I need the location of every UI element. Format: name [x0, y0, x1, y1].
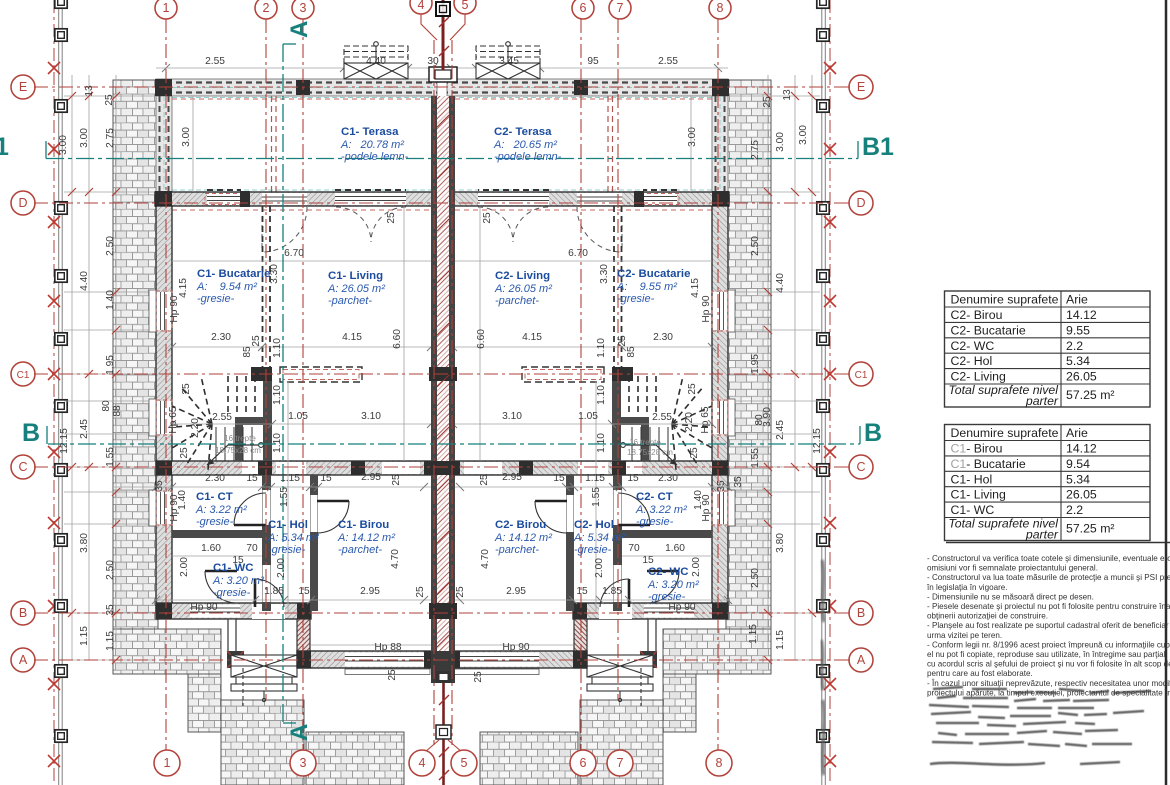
svg-text:pentru care au fost elaborate.: pentru care au fost elaborate.: [927, 669, 1033, 678]
svg-text:A: 3.22 m²: A: 3.22 m²: [195, 504, 247, 516]
svg-text:-gresie-: -gresie-: [574, 544, 612, 556]
svg-text:- Constructorul va lua toate m: - Constructorul va lua toate măsurile de…: [927, 573, 1170, 582]
svg-text:25: 25: [415, 586, 426, 598]
svg-text:70: 70: [628, 543, 640, 554]
svg-text:2.55: 2.55: [658, 56, 678, 67]
svg-text:13: 13: [84, 85, 95, 97]
svg-text:25: 25: [391, 474, 402, 486]
svg-text:2.50: 2.50: [105, 236, 116, 256]
svg-text:A: A: [286, 724, 313, 741]
svg-text:9.54: 9.54: [1066, 457, 1090, 471]
svg-text:C: C: [18, 460, 27, 474]
svg-text:25: 25: [482, 212, 493, 224]
svg-text:Hp 90: Hp 90: [502, 642, 530, 653]
svg-text:15: 15: [627, 473, 639, 484]
svg-text:A: 9.54 m²: A: 9.54 m²: [196, 281, 257, 293]
svg-text:1.15: 1.15: [79, 626, 90, 646]
svg-text:1.15: 1.15: [748, 624, 759, 644]
svg-text:B1: B1: [0, 133, 9, 161]
svg-text:70: 70: [246, 543, 258, 554]
svg-text:7: 7: [617, 1, 624, 15]
svg-text:2.55: 2.55: [652, 412, 672, 423]
svg-text:parter: parter: [1025, 394, 1059, 408]
svg-text:35: 35: [733, 476, 744, 488]
svg-text:1.85: 1.85: [602, 586, 622, 597]
svg-text:-gresie-: -gresie-: [617, 293, 655, 305]
svg-text:A: 14.12 m²: A: 14.12 m²: [494, 532, 552, 544]
svg-text:25: 25: [455, 586, 466, 598]
svg-text:omisiuni vor fi semnalate proi: omisiuni vor fi semnalate proiectantului…: [927, 564, 1098, 573]
svg-text:C1- WC: C1- WC: [951, 503, 995, 517]
svg-text:4.70: 4.70: [480, 549, 491, 569]
svg-text:A: A: [286, 21, 313, 38]
svg-text:2.45: 2.45: [775, 420, 786, 440]
svg-text:-gresie-: -gresie-: [197, 293, 235, 305]
svg-text:- În cazul unor situaţii nepre: - În cazul unor situaţii neprevăzute, re…: [927, 679, 1170, 688]
svg-text:15: 15: [553, 473, 565, 484]
svg-text:1.10: 1.10: [272, 385, 283, 405]
svg-text:urma vizitei pe teren.: urma vizitei pe teren.: [927, 631, 1002, 640]
svg-text:1: 1: [163, 1, 170, 15]
svg-text:Denumire suprafete: Denumire suprafete: [951, 293, 1059, 307]
svg-text:Hp 90: Hp 90: [169, 494, 180, 522]
svg-text:obţinerii autorizaţiei de cons: obţinerii autorizaţiei de construire.: [927, 612, 1048, 621]
svg-text:25: 25: [104, 94, 115, 106]
svg-text:2.50: 2.50: [750, 236, 761, 256]
svg-text:7: 7: [617, 756, 624, 770]
svg-text:1.15: 1.15: [585, 473, 605, 484]
svg-text:16 trepte: 16 trepte: [629, 438, 661, 447]
svg-text:1.10: 1.10: [272, 338, 283, 358]
svg-text:6.60: 6.60: [476, 329, 487, 349]
svg-text:în legislaţia în vigoare.: în legislaţia în vigoare.: [926, 583, 1008, 592]
svg-text:C1: C1: [855, 370, 868, 381]
svg-text:9.55: 9.55: [1066, 323, 1090, 337]
svg-text:-parchet-: -parchet-: [328, 295, 372, 307]
svg-text:30: 30: [427, 56, 439, 67]
svg-text:-gresie-: -gresie-: [268, 544, 306, 556]
svg-text:- Constructorul va verifica to: - Constructorul va verifica toate cotele…: [927, 554, 1170, 563]
svg-text:-gresie-: -gresie-: [213, 587, 251, 599]
svg-text:3.00: 3.00: [798, 125, 809, 145]
svg-text:8: 8: [716, 756, 723, 770]
svg-text:18.75x28 cm: 18.75x28 cm: [215, 446, 261, 455]
svg-text:1.60: 1.60: [201, 543, 221, 554]
svg-text:- Piesele desenate şi proiectu: - Piesele desenate şi proiectul nu pot f…: [927, 602, 1170, 611]
svg-text:B: B: [19, 606, 27, 620]
svg-text:6: 6: [580, 1, 587, 15]
svg-text:25: 25: [689, 447, 700, 459]
svg-text:3.00: 3.00: [58, 135, 69, 155]
svg-text:A: 3.22 m²: A: 3.22 m²: [635, 504, 687, 516]
svg-text:85: 85: [242, 346, 253, 358]
svg-text:4: 4: [419, 756, 426, 770]
svg-text:C2- WC: C2- WC: [951, 339, 995, 353]
svg-text:1.05: 1.05: [288, 411, 308, 422]
svg-text:-parchet-: -parchet-: [338, 544, 382, 556]
svg-text:3.30: 3.30: [269, 264, 280, 284]
svg-text:25: 25: [251, 335, 262, 347]
svg-text:Arie: Arie: [1066, 426, 1088, 440]
svg-text:2.95: 2.95: [360, 586, 380, 597]
svg-text:A: A: [19, 653, 28, 667]
svg-text:C2- WC: C2- WC: [648, 566, 689, 578]
svg-text:Hp 90: Hp 90: [701, 494, 712, 522]
svg-text:4.40: 4.40: [79, 271, 90, 291]
svg-text:2.00: 2.00: [276, 558, 287, 578]
svg-text:C1- Birou: C1- Birou: [338, 519, 389, 531]
svg-text:1.95: 1.95: [750, 354, 761, 374]
svg-text:A: 5.34 m²: A: 5.34 m²: [573, 532, 625, 544]
svg-text:3.45: 3.45: [499, 56, 519, 67]
svg-text:1.05: 1.05: [578, 411, 598, 422]
svg-text:C2- Bucatarie: C2- Bucatarie: [951, 323, 1026, 337]
svg-text:25: 25: [386, 212, 397, 224]
svg-text:1.95: 1.95: [105, 355, 116, 375]
svg-text:3.00: 3.00: [687, 127, 698, 147]
svg-text:3.10: 3.10: [361, 411, 381, 422]
svg-text:- Planşele au fost realizate p: - Planşele au fost realizate pe suportul…: [927, 621, 1170, 630]
svg-text:A: 26.05 m²: A: 26.05 m²: [327, 283, 385, 295]
svg-text:Denumire suprafete: Denumire suprafete: [951, 426, 1059, 440]
svg-text:95: 95: [587, 56, 599, 67]
svg-text:1.10: 1.10: [596, 338, 607, 358]
svg-text:3.10: 3.10: [502, 411, 522, 422]
svg-text:Arie: Arie: [1066, 293, 1088, 307]
svg-text:1.10: 1.10: [596, 433, 607, 453]
svg-text:A: 14.12 m²: A: 14.12 m²: [337, 532, 395, 544]
svg-text:2.50: 2.50: [105, 560, 116, 580]
svg-text:15: 15: [642, 555, 654, 566]
svg-text:A: 3.20 m²: A: 3.20 m²: [647, 579, 699, 591]
svg-text:25: 25: [617, 335, 628, 347]
svg-text:3.00: 3.00: [181, 127, 192, 147]
svg-text:Hp 90: Hp 90: [169, 295, 180, 323]
svg-text:35: 35: [716, 480, 727, 492]
svg-text:-podele lemn-: -podele lemn-: [494, 151, 562, 163]
svg-text:C1- Terasa: C1- Terasa: [341, 126, 399, 138]
svg-text:Hp 65: Hp 65: [168, 406, 179, 434]
svg-text:-parchet-: -parchet-: [495, 544, 539, 556]
svg-text:2.30: 2.30: [205, 473, 225, 484]
svg-text:A: 20.78 m²: A: 20.78 m²: [340, 139, 404, 151]
svg-text:2.75: 2.75: [105, 128, 116, 148]
svg-text:1.40: 1.40: [105, 290, 116, 310]
svg-text:3.30: 3.30: [599, 264, 610, 284]
svg-text:1: 1: [164, 756, 171, 770]
svg-text:5: 5: [461, 756, 468, 770]
svg-text:3: 3: [300, 756, 307, 770]
svg-text:3.80: 3.80: [775, 533, 786, 553]
svg-text:C2- CT: C2- CT: [636, 491, 673, 503]
svg-text:4.40: 4.40: [366, 56, 386, 67]
svg-text:5.34: 5.34: [1066, 354, 1090, 368]
svg-text:2.2: 2.2: [1066, 339, 1083, 353]
svg-text:2.45: 2.45: [79, 419, 90, 439]
svg-text:C1- WC: C1- WC: [213, 562, 254, 574]
svg-text:1.60: 1.60: [665, 543, 685, 554]
svg-text:18.75x28 cm: 18.75x28 cm: [627, 448, 673, 457]
svg-text:-gresie-: -gresie-: [648, 591, 686, 603]
svg-text:2: 2: [263, 1, 270, 15]
svg-text:25: 25: [473, 671, 484, 683]
svg-text:1.15: 1.15: [105, 631, 116, 651]
svg-text:13: 13: [782, 89, 793, 101]
svg-text:C1- CT: C1- CT: [196, 491, 233, 503]
svg-text:C1: C1: [17, 370, 30, 381]
svg-text:6.60: 6.60: [392, 329, 403, 349]
svg-text:C2- Living: C2- Living: [951, 370, 1007, 384]
svg-text:4.40: 4.40: [775, 273, 786, 293]
svg-text:2.20: 2.20: [684, 412, 695, 432]
svg-text:1.55: 1.55: [591, 487, 602, 507]
svg-text:2.95: 2.95: [506, 586, 526, 597]
svg-text:B1: B1: [862, 133, 894, 161]
svg-text:Hp 90: Hp 90: [190, 602, 218, 613]
svg-text:88: 88: [112, 405, 123, 417]
svg-text:6: 6: [580, 756, 587, 770]
svg-text:2.30: 2.30: [658, 473, 678, 484]
svg-text:2.75: 2.75: [750, 140, 761, 160]
svg-text:-podele lemn-: -podele lemn-: [341, 151, 409, 163]
svg-text:57.25 m²: 57.25 m²: [1066, 522, 1115, 536]
svg-text:25: 25: [479, 474, 490, 486]
svg-text:2.95: 2.95: [361, 472, 381, 483]
svg-text:26.05: 26.05: [1066, 370, 1097, 384]
svg-text:A: 5.34 m²: A: 5.34 m²: [267, 532, 319, 544]
svg-text:C1- Bucatarie: C1- Bucatarie: [951, 457, 1026, 471]
svg-text:14.12: 14.12: [1066, 442, 1097, 456]
svg-text:-gresie-: -gresie-: [196, 516, 234, 528]
svg-text:B: B: [857, 606, 865, 620]
svg-text:1.55: 1.55: [750, 448, 761, 468]
svg-text:Hp 90: Hp 90: [668, 602, 696, 613]
svg-text:E: E: [19, 80, 27, 94]
svg-text:2.30: 2.30: [211, 332, 231, 343]
svg-text:1.15: 1.15: [775, 630, 786, 650]
svg-text:12.15: 12.15: [812, 428, 823, 454]
svg-text:1.55: 1.55: [105, 447, 116, 467]
svg-text:1.85: 1.85: [264, 586, 284, 597]
svg-text:15: 15: [246, 473, 258, 484]
svg-text:C1- Hol: C1- Hol: [951, 472, 993, 486]
svg-text:2.55: 2.55: [205, 56, 225, 67]
svg-text:16 trepte: 16 trepte: [224, 434, 256, 443]
svg-text:D: D: [18, 196, 27, 210]
svg-text:26.05: 26.05: [1066, 488, 1097, 502]
svg-text:8: 8: [717, 1, 724, 15]
svg-text:C2- Terasa: C2- Terasa: [494, 126, 552, 138]
svg-text:Hp 90: Hp 90: [701, 295, 712, 323]
svg-text:2.2: 2.2: [1066, 503, 1083, 517]
svg-text:6.70: 6.70: [568, 248, 588, 259]
svg-text:A: 26.05 m²: A: 26.05 m²: [494, 283, 552, 295]
svg-text:25: 25: [687, 383, 698, 395]
svg-text:2.00: 2.00: [691, 557, 702, 577]
svg-text:5: 5: [462, 0, 469, 12]
svg-text:1.15: 1.15: [280, 473, 300, 484]
svg-text:57.25 m²: 57.25 m²: [1066, 388, 1115, 402]
svg-text:6.70: 6.70: [284, 248, 304, 259]
svg-text:35: 35: [154, 480, 165, 492]
svg-text:3.00: 3.00: [775, 132, 786, 152]
svg-text:1.10: 1.10: [272, 433, 283, 453]
svg-text:A: 3.20 m²: A: 3.20 m²: [212, 575, 264, 587]
svg-text:C1- Living: C1- Living: [328, 270, 383, 282]
svg-text:3.00: 3.00: [79, 128, 90, 148]
svg-text:A: 9.55 m²: A: 9.55 m²: [616, 281, 677, 293]
svg-text:35: 35: [105, 604, 116, 616]
svg-text:C1- Hol: C1- Hol: [268, 519, 308, 531]
svg-text:3.80: 3.80: [79, 533, 90, 553]
svg-text:12.15: 12.15: [59, 428, 70, 454]
svg-text:25: 25: [179, 447, 190, 459]
svg-text:C: C: [856, 460, 865, 474]
svg-text:2.50: 2.50: [750, 568, 761, 588]
svg-text:2.30: 2.30: [653, 332, 673, 343]
svg-text:80: 80: [101, 400, 112, 412]
svg-text:C2- Hol: C2- Hol: [574, 519, 614, 531]
svg-text:C1- Birou: C1- Birou: [951, 442, 1003, 456]
svg-text:- Conform legii nr. 8/1996 ace: - Conform legii nr. 8/1996 acest proiect…: [927, 640, 1170, 649]
svg-text:2.55: 2.55: [212, 412, 232, 423]
svg-text:C1- Living: C1- Living: [951, 488, 1007, 502]
svg-text:Hp 65: Hp 65: [700, 406, 711, 434]
svg-text:15: 15: [576, 586, 588, 597]
svg-text:5.34: 5.34: [1066, 472, 1090, 486]
svg-text:D: D: [856, 196, 865, 210]
svg-text:2.00: 2.00: [594, 558, 605, 578]
svg-text:25: 25: [387, 669, 398, 681]
svg-text:15: 15: [320, 473, 332, 484]
svg-text:2.20: 2.20: [190, 418, 201, 438]
svg-text:Hp 88: Hp 88: [374, 642, 402, 653]
svg-text:85: 85: [626, 346, 637, 358]
svg-text:2.95: 2.95: [502, 472, 522, 483]
svg-text:C2- Hol: C2- Hol: [951, 354, 993, 368]
svg-text:C1- Bucatarie: C1- Bucatarie: [197, 268, 270, 280]
svg-text:4.15: 4.15: [522, 332, 542, 343]
svg-text:4.15: 4.15: [690, 278, 701, 298]
svg-text:14.12: 14.12: [1066, 308, 1097, 322]
svg-text:3.90: 3.90: [762, 407, 773, 427]
svg-text:4.15: 4.15: [178, 278, 189, 298]
svg-text:25: 25: [181, 383, 192, 395]
svg-text:-gresie-: -gresie-: [636, 516, 674, 528]
svg-text:cu acordul scris al şefului de: cu acordul scris al şefului de proiect ş…: [927, 660, 1170, 669]
svg-text:E: E: [857, 80, 865, 94]
svg-text:B: B: [864, 419, 882, 447]
svg-text:C2- Birou: C2- Birou: [495, 519, 546, 531]
svg-text:parter: parter: [1025, 528, 1059, 542]
svg-text:1.55: 1.55: [279, 487, 290, 507]
svg-text:el nu pot fi copiate, reprodus: el nu pot fi copiate, reproduse sau util…: [927, 650, 1170, 659]
svg-text:3: 3: [300, 1, 307, 15]
svg-text:1.10: 1.10: [596, 385, 607, 405]
svg-text:C2- Bucatarie: C2- Bucatarie: [617, 268, 690, 280]
svg-text:- Dimensiunile nu se măsoară d: - Dimensiunile nu se măsoară direct pe d…: [927, 592, 1094, 601]
svg-text:15: 15: [298, 586, 310, 597]
svg-text:C2- Birou: C2- Birou: [951, 308, 1003, 322]
svg-text:A: A: [857, 653, 866, 667]
svg-text:4: 4: [418, 0, 425, 12]
svg-text:B: B: [22, 419, 40, 447]
svg-text:2.00: 2.00: [179, 557, 190, 577]
svg-text:4.15: 4.15: [342, 332, 362, 343]
svg-text:4.70: 4.70: [390, 549, 401, 569]
svg-text:-parchet-: -parchet-: [495, 295, 539, 307]
svg-text:C2- Living: C2- Living: [495, 270, 550, 282]
svg-text:25: 25: [762, 96, 773, 108]
svg-text:A: 20.65 m²: A: 20.65 m²: [493, 139, 557, 151]
